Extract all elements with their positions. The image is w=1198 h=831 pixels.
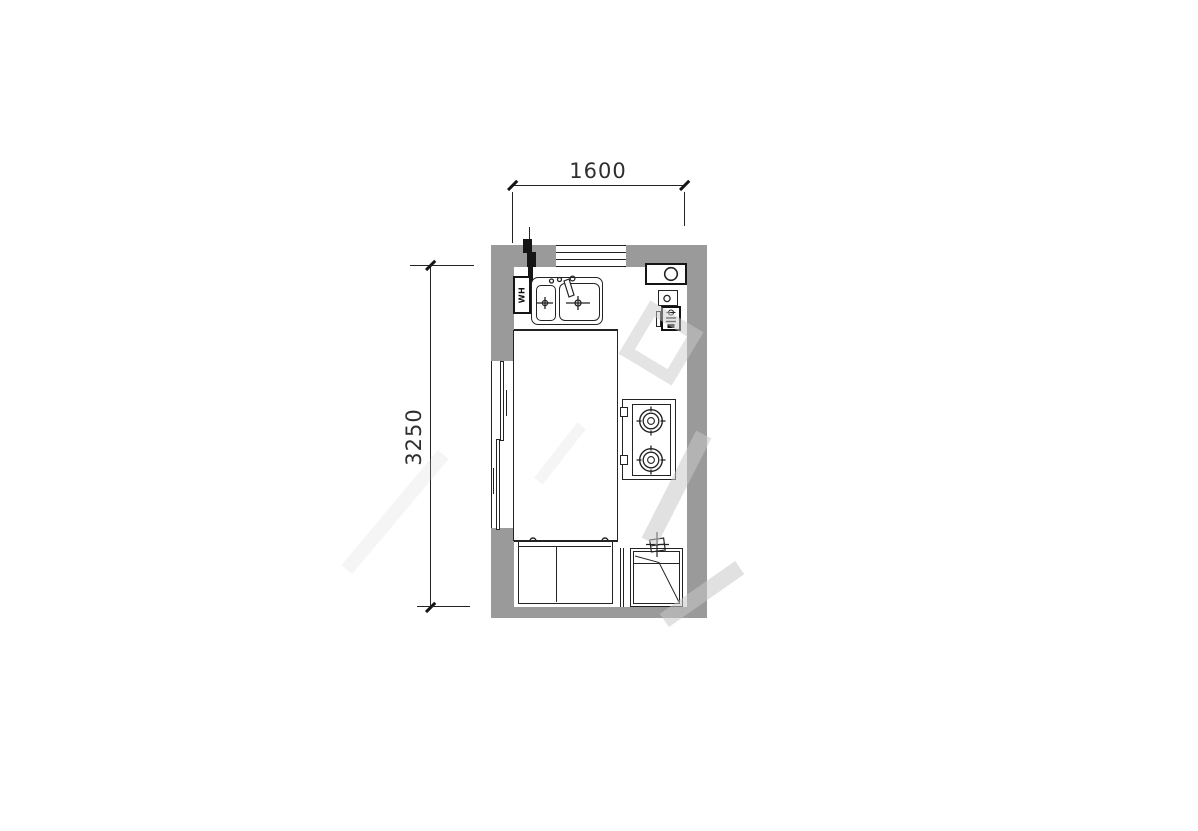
fixture-details-overlay — [0, 0, 1198, 831]
floor-plan-canvas: 1600 3250 WH — [0, 0, 1198, 831]
